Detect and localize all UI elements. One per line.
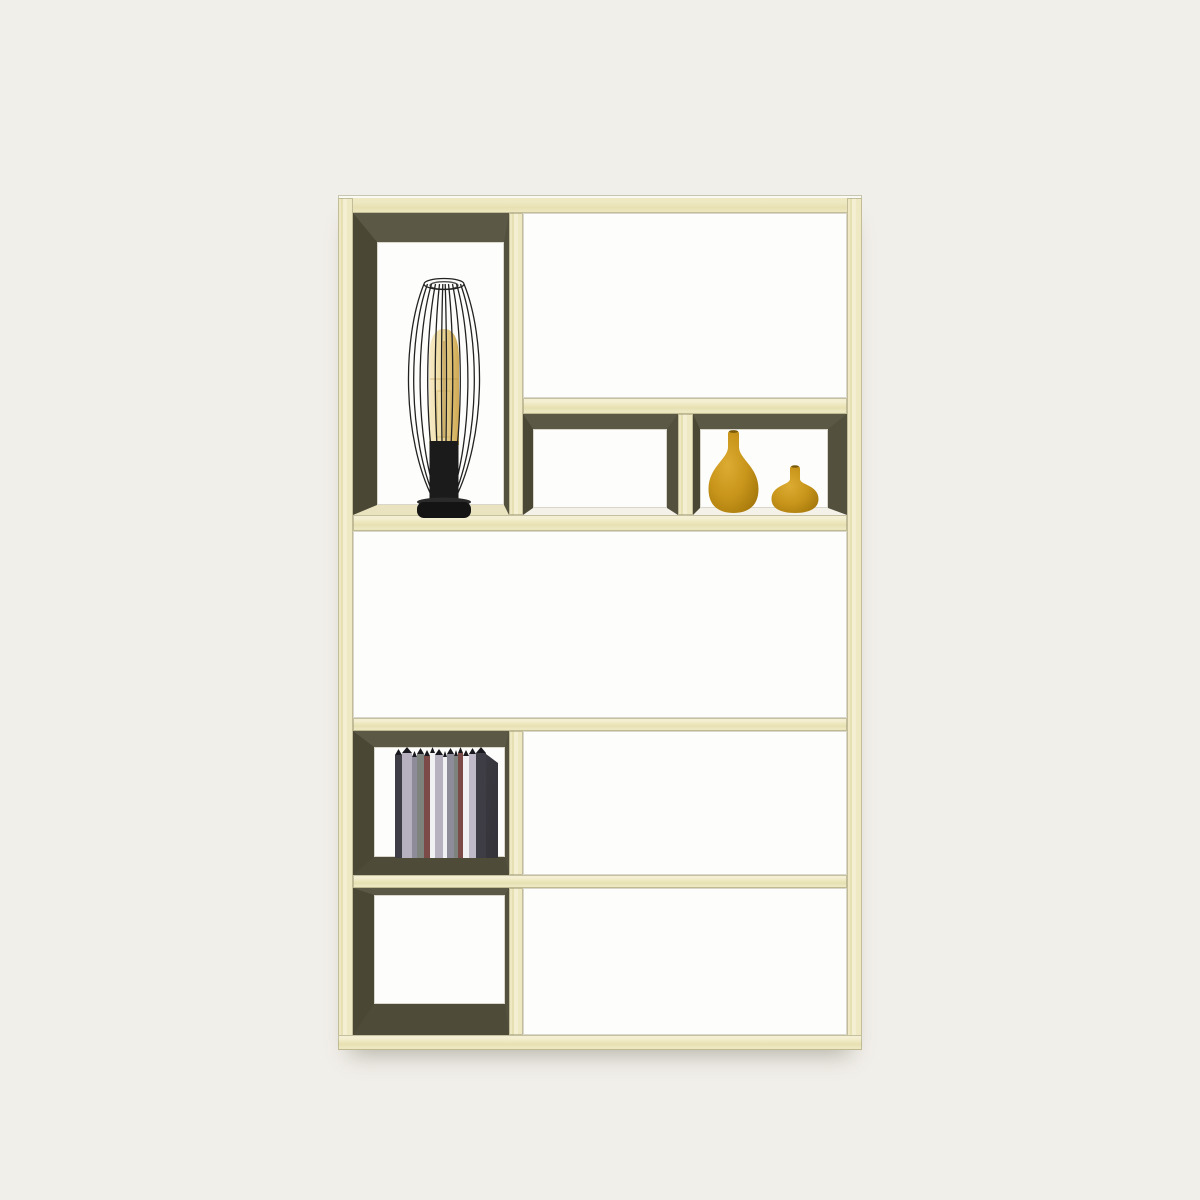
frame-bottom [338,1035,862,1050]
book [447,748,454,858]
sub-shelf [523,398,847,414]
shelf-2 [353,718,847,731]
wire-cage-lamp [398,273,490,519]
compartment-bottom-left [353,888,509,1035]
book [476,747,486,858]
frame-top [338,195,862,213]
book [412,751,417,858]
compartment-middle-full-width [353,531,847,718]
shelf-unit [338,195,862,1050]
shelf-3 [353,875,847,888]
compartment-bottom-right [523,888,847,1035]
book [417,748,424,858]
book [454,750,458,858]
book-side-face [486,752,498,858]
book [458,747,463,858]
book-row [395,747,498,858]
compartment-row3-right [523,731,847,875]
vase-pair [703,427,828,515]
vase-large [709,430,759,513]
divider-sub-row1 [678,414,693,515]
book [443,751,447,858]
book [402,747,412,858]
divider-main-row1 [509,213,523,515]
book [395,749,402,858]
book [463,750,469,858]
book [430,747,435,858]
lamp-bulb [429,329,459,445]
divider-main-row4 [509,888,523,1035]
backdrop [0,0,1200,1200]
vase-small [772,465,819,513]
compartment-top-right-upper [523,213,847,398]
book [435,749,443,858]
frame-right [847,198,862,1050]
divider-main-row3 [509,731,523,875]
frame-left [338,198,353,1050]
book [424,750,430,858]
book [469,748,476,858]
compartment-top-right-lower-left [523,414,678,515]
